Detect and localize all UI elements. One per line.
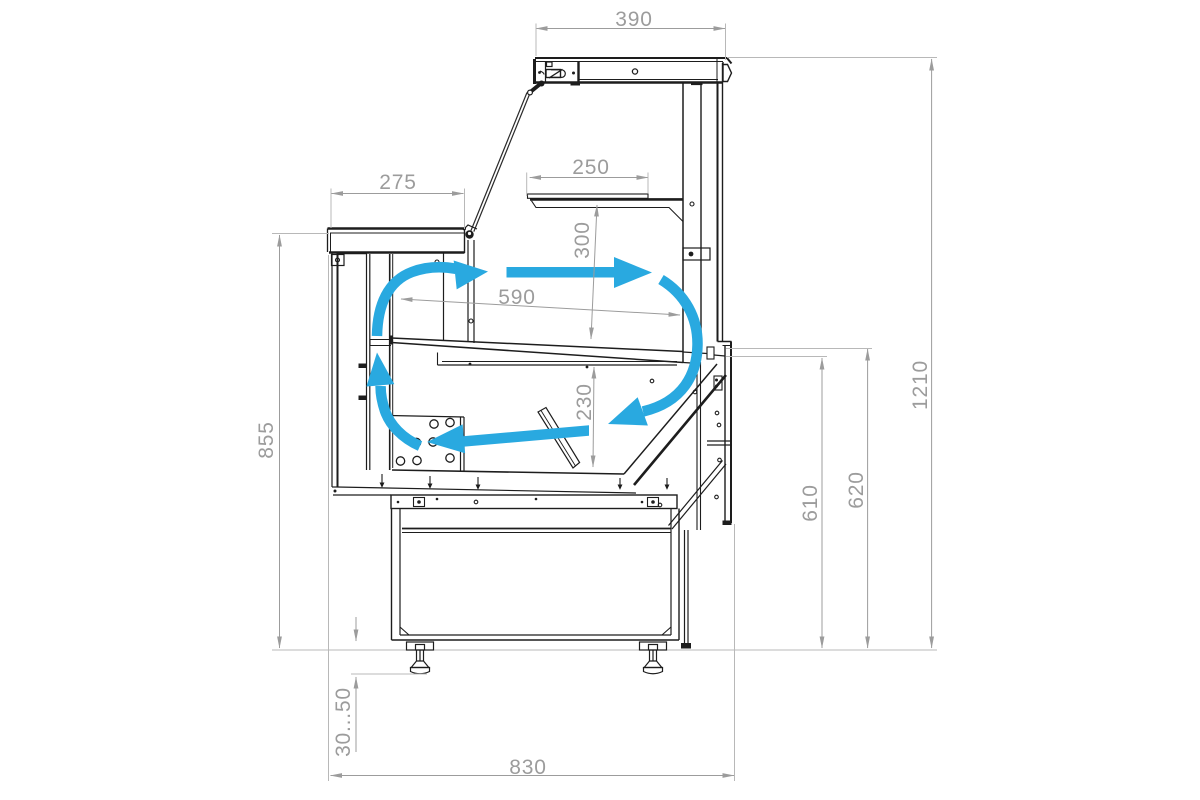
svg-text:610: 610 — [799, 484, 822, 521]
svg-text:390: 390 — [615, 8, 652, 31]
svg-text:30...50: 30...50 — [332, 687, 355, 757]
svg-text:1210: 1210 — [909, 360, 932, 410]
svg-text:275: 275 — [379, 171, 416, 194]
svg-text:590: 590 — [498, 286, 535, 309]
svg-text:830: 830 — [509, 756, 546, 779]
svg-text:855: 855 — [255, 421, 278, 458]
svg-text:230: 230 — [573, 383, 596, 420]
svg-text:300: 300 — [571, 221, 594, 258]
svg-text:250: 250 — [572, 156, 609, 179]
svg-text:620: 620 — [845, 471, 868, 508]
